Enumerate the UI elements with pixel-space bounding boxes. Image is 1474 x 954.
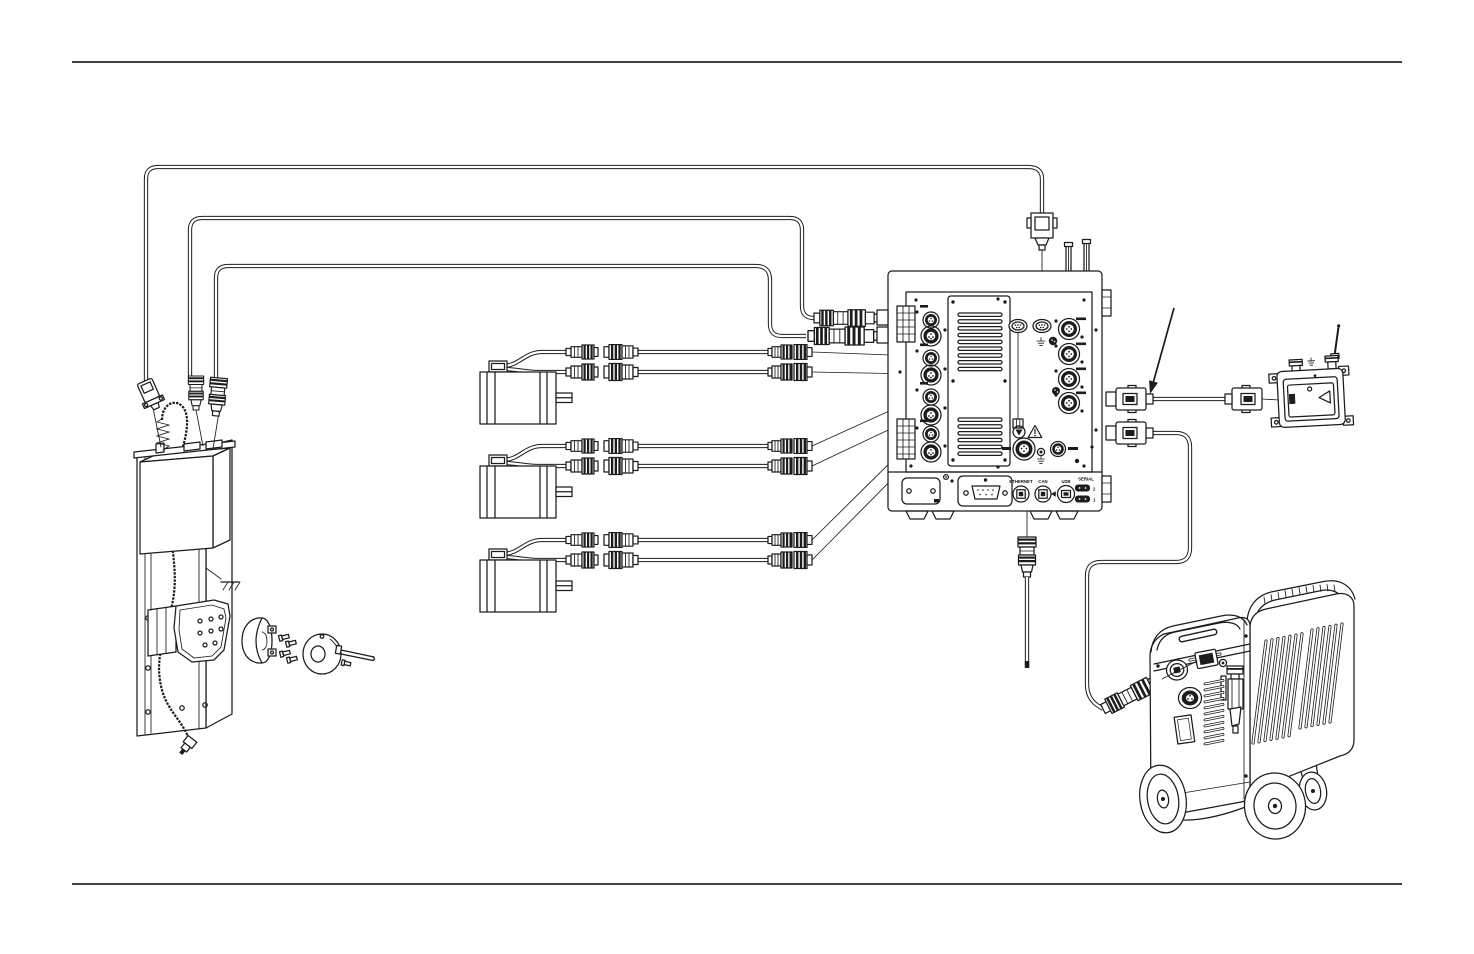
work-lead-receptacle — [1179, 688, 1202, 709]
side-vent-grid-2 — [897, 419, 915, 459]
serial-label: SERIAL — [1078, 477, 1094, 482]
usb-label: USB — [1061, 479, 1070, 484]
controller-box: ETHERNET CAN USB SERIAL 2 1 — [877, 240, 1111, 520]
enclosure-feet — [906, 511, 1078, 519]
parallel-port-plate — [958, 476, 1012, 506]
clamp-ring — [303, 634, 341, 674]
dsub-connector-vertical — [1027, 213, 1057, 250]
annotation-arrow — [1149, 308, 1174, 394]
motor-3 — [480, 533, 812, 612]
cable-gland-2 — [1325, 355, 1339, 369]
plasma-power-supply — [1135, 581, 1355, 842]
serial-port-2 — [1075, 485, 1090, 492]
lifter-round-connector-1 — [188, 376, 203, 410]
wiring-diagram-canvas: ETHERNET CAN USB SERIAL 2 1 — [0, 0, 1474, 954]
torch-lifter-assembly — [134, 376, 240, 757]
lifter-cable-run-3 — [216, 266, 878, 378]
panel-dsub-b — [1033, 320, 1051, 333]
motor-2 — [480, 439, 812, 518]
antenna-icon — [1329, 324, 1342, 359]
ground-icon-remote — [1308, 358, 1315, 366]
motor-1 — [480, 345, 812, 424]
lifter-dsub-connector — [134, 377, 166, 413]
torch-bracket — [148, 600, 230, 662]
can-label: CAN — [1038, 479, 1047, 484]
lifter-round-connector-2 — [207, 377, 227, 416]
data-plate — [1174, 715, 1195, 744]
barrel-connector — [814, 310, 878, 326]
clamp-bolts — [278, 633, 297, 663]
torch-receptacle — [1195, 649, 1219, 669]
panel-dsub-a — [1009, 320, 1027, 333]
cnc-interface-cable — [1018, 511, 1036, 668]
plasma-dsub — [1116, 420, 1153, 447]
side-vent-grid-1 — [897, 306, 915, 342]
pendant-cable — [1106, 386, 1279, 413]
center-vent-panel — [948, 296, 1010, 466]
serial-port-1 — [1075, 496, 1090, 503]
manual-page: ETHERNET CAN USB SERIAL 2 1 — [0, 0, 1474, 954]
barrel-connector — [808, 327, 878, 345]
clamp-half — [242, 618, 276, 663]
pendant-dsub-right — [1225, 386, 1262, 413]
signal-cable-connector — [176, 735, 196, 757]
remote-interface-box — [1266, 324, 1353, 429]
pendant-dsub-left — [1116, 386, 1153, 413]
lifter-body — [134, 440, 235, 554]
ethernet-label: ETHERNET — [1009, 479, 1033, 484]
cnc-cable-connector — [1018, 537, 1036, 577]
torch-clamp-exploded — [242, 618, 375, 674]
